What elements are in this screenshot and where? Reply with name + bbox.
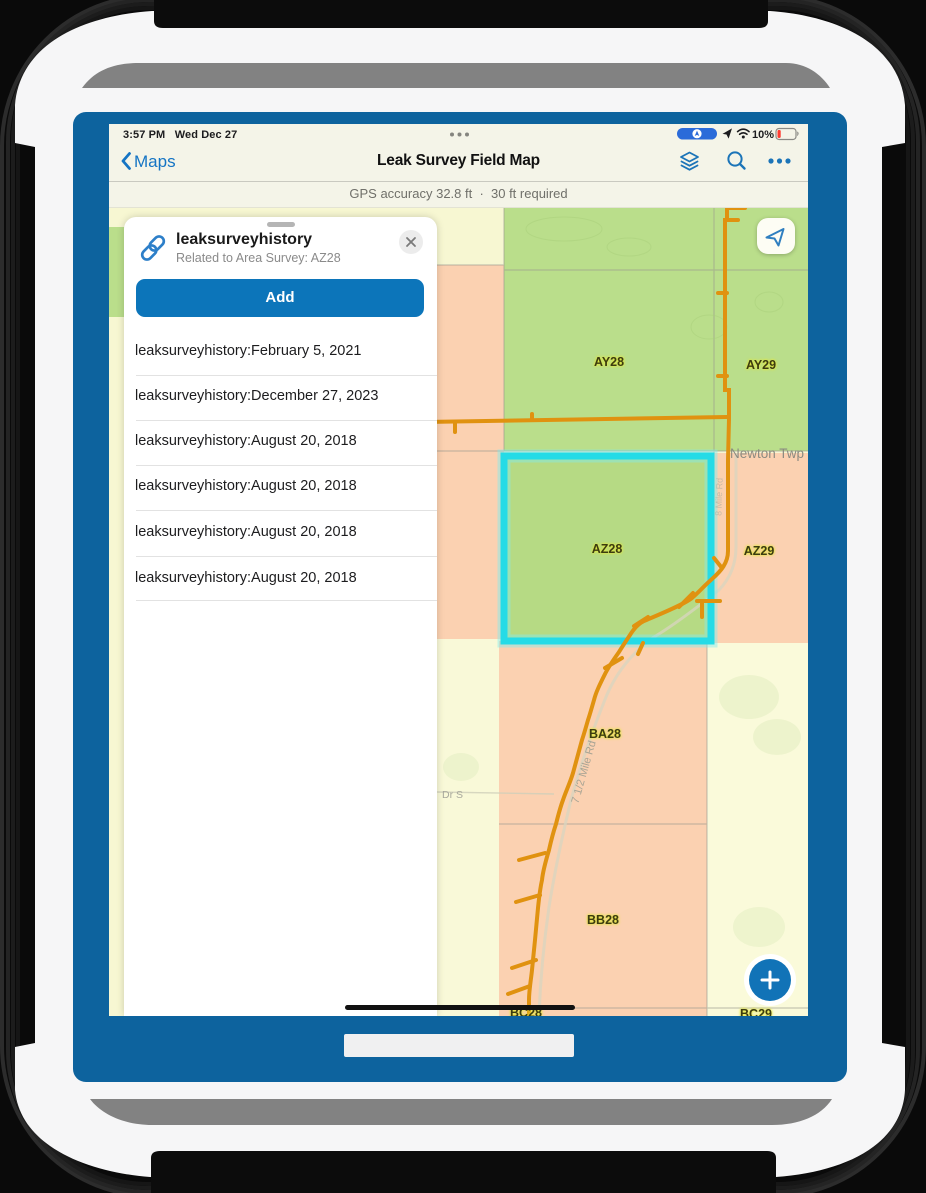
svg-text:8 Mile Rd: 8 Mile Rd — [713, 478, 724, 516]
svg-text:AZ29: AZ29 — [744, 544, 775, 558]
svg-text:AY29: AY29 — [746, 358, 776, 372]
svg-text:AY28: AY28 — [594, 355, 624, 369]
svg-text:Newton Twp: Newton Twp — [730, 446, 804, 461]
svg-text:AZ28: AZ28 — [592, 542, 623, 556]
svg-text:BC29: BC29 — [740, 1007, 772, 1016]
svg-text:10%: 10% — [752, 129, 774, 141]
svg-text:Dr S: Dr S — [442, 789, 463, 801]
svg-text:BA28: BA28 — [589, 727, 621, 741]
svg-text:BB28: BB28 — [587, 913, 619, 927]
